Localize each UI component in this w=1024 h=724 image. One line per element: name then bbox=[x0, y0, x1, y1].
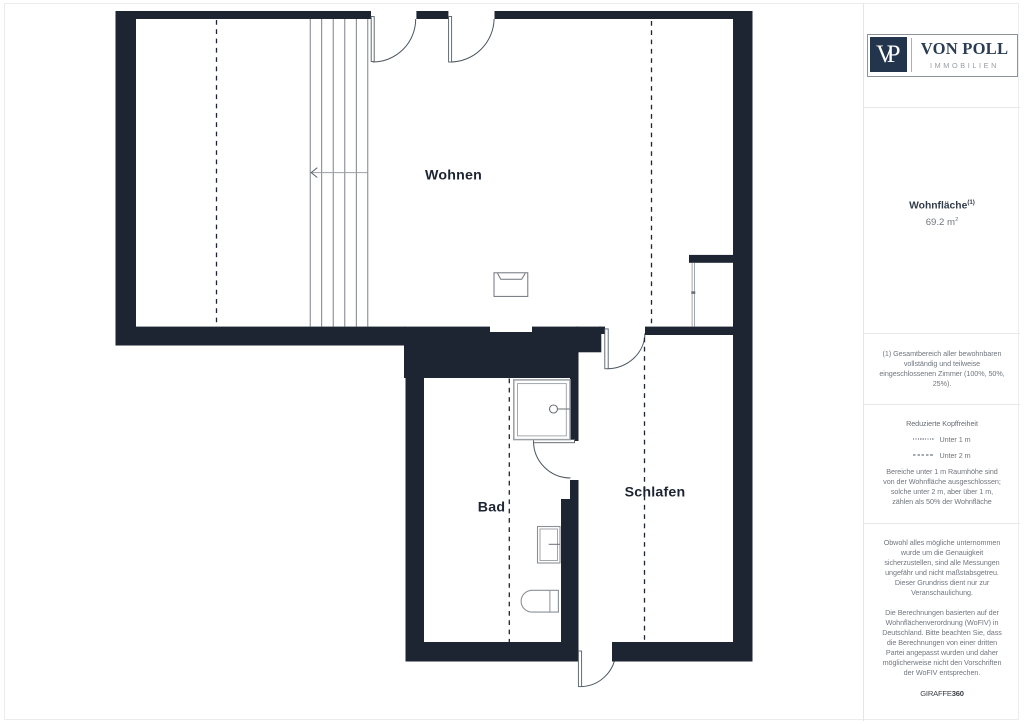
svg-text:Wohnen: Wohnen bbox=[425, 168, 482, 184]
svg-text:Bad: Bad bbox=[478, 500, 505, 516]
svg-text:Schlafen: Schlafen bbox=[625, 485, 686, 501]
